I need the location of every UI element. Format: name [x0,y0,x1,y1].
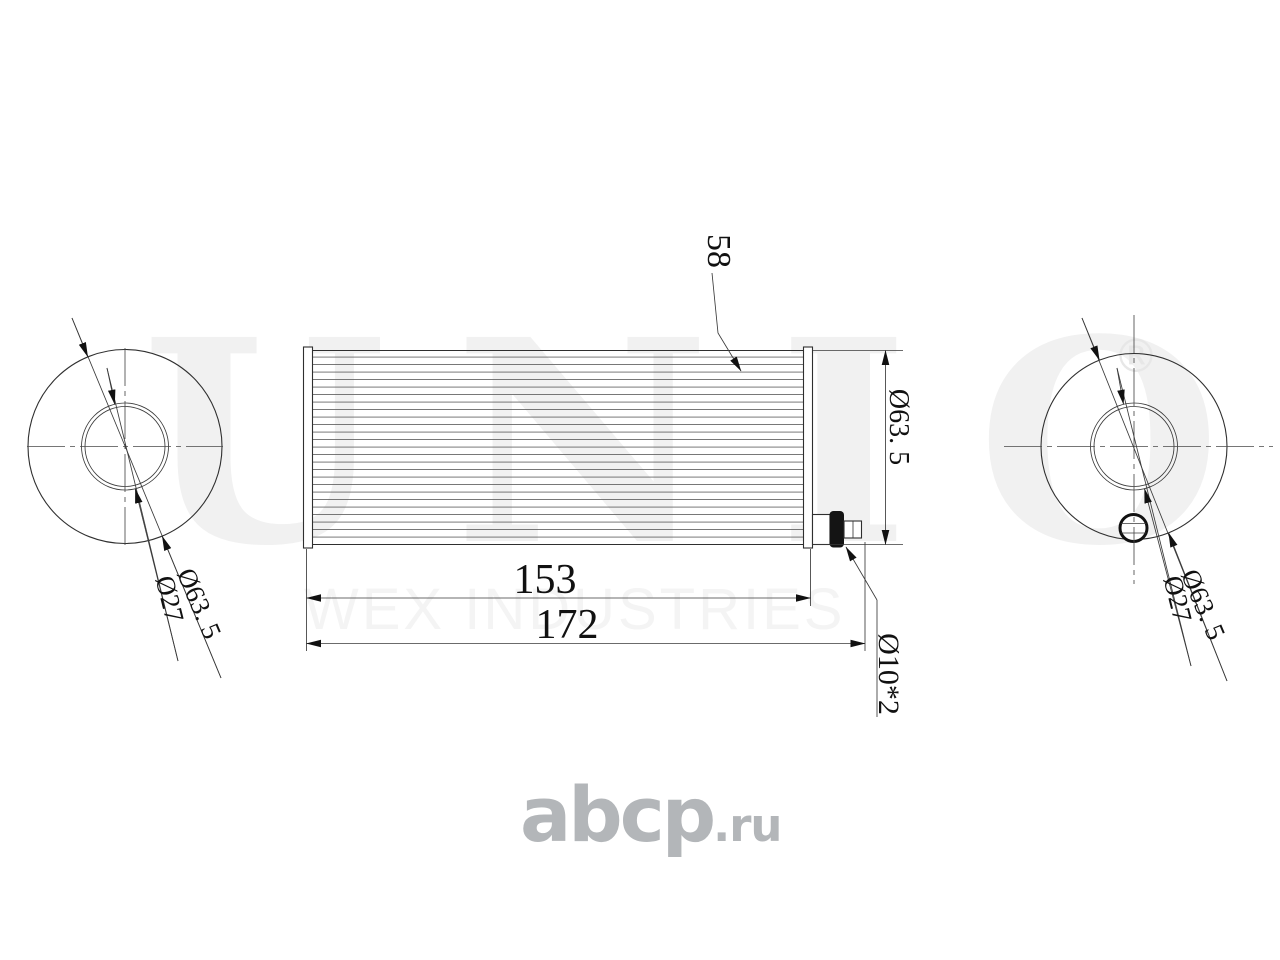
left-dia-arrow-3 [107,368,115,404]
port-leader-arrow [846,547,877,600]
port-size-label: Ø10*2 [872,633,905,715]
port-end-view-circle [1120,515,1147,542]
outlet-port [813,511,862,548]
dim-port-size: Ø10*2 [846,547,905,717]
dim-overall-length: 172 [307,542,866,651]
element-length-label: 153 [514,557,577,603]
right-dia-arrow-1 [1082,318,1099,360]
port-base [813,515,831,545]
right-end-view: Ø63. 5 Ø27 [1004,315,1273,681]
right-dia-arrow-3 [1117,368,1124,404]
left-end-cap [304,347,313,548]
right-end-cap [804,347,813,548]
left-dia-arrow-1 [72,318,88,357]
body-diameter-label: Ø63. 5 [883,389,914,465]
overall-length-label: 172 [536,602,599,648]
filter-technical-drawing: Ø63. 5 Ø27 58 [0,0,1280,960]
pleat-callout-label: 58 [700,234,737,268]
o-ring-band [830,511,845,548]
pleat-lines [312,350,804,545]
drawing-page: UNIO ® WEX INDUSTRIES abcp.ru [0,0,1280,960]
side-view: 58 Ø63. 5 153 172 [304,234,915,717]
left-end-view: Ø63. 5 Ø27 [27,318,227,678]
